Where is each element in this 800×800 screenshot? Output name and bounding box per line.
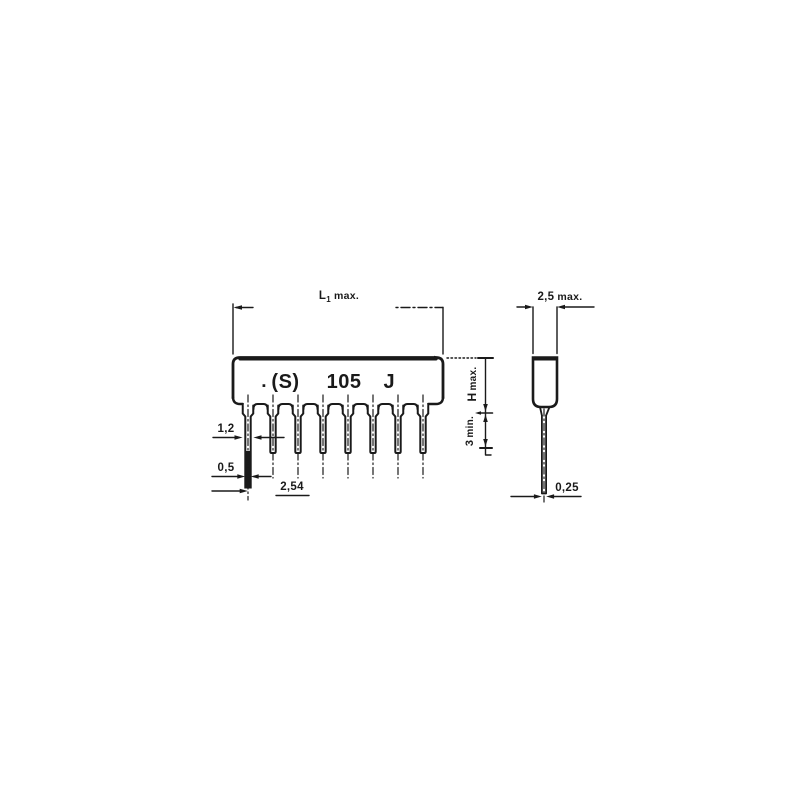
marking-dot: ▪ (262, 380, 266, 392)
dim-neck-width-label: 1,2 (218, 423, 235, 435)
dim-lead-min-label: 3min. (464, 416, 476, 446)
diagram-linework (0, 0, 800, 800)
dim-length-lines (233, 304, 476, 358)
side-view-body (533, 358, 557, 503)
package-outline-drawing: L1max. 2,5max. Hmax. 3min. 1,2 0,5 2,54 … (0, 0, 800, 800)
marking-part-value: 105 (327, 371, 362, 394)
pin-centerlines (248, 395, 423, 500)
dim-length-label: L1max. (319, 290, 359, 302)
dim-pitch-label: 2,54 (280, 481, 304, 493)
dim-length-unit: max. (334, 290, 359, 302)
dim-height-base: H (465, 393, 479, 402)
front-view-pins (243, 406, 429, 488)
marking-part-type: (S) (271, 371, 299, 394)
dim-body-width-label: 2,5max. (537, 291, 582, 303)
marking-part-tolerance: J (383, 371, 395, 394)
body-marking: ▪ (S) 105 J (262, 371, 395, 394)
dimension-arrowheads (234, 305, 566, 499)
dim-height-unit: max. (468, 367, 479, 391)
dim-lead-min-base: 3 (464, 440, 476, 446)
dim-lead-width-label: 0,5 (218, 462, 235, 474)
dim-lead-thickness-label: 0,25 (555, 482, 579, 494)
dim-height-label: Hmax. (465, 367, 479, 402)
dim-lead-min-unit: min. (465, 416, 476, 438)
dim-length-sub: 1 (326, 295, 331, 304)
dim-body-width-base: 2,5 (537, 291, 554, 303)
dim-body-width-unit: max. (557, 291, 582, 303)
